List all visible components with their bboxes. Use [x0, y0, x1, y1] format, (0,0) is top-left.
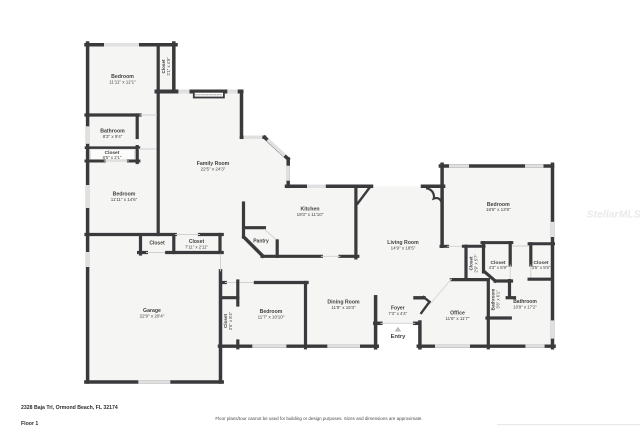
svg-text:11'8" x 15'3": 11'8" x 15'3" [331, 305, 356, 310]
svg-text:7'11" x 2'11": 7'11" x 2'11" [185, 244, 208, 249]
svg-text:11'7" x 10'10": 11'7" x 10'10" [258, 314, 285, 319]
svg-text:Floor 1: Floor 1 [21, 421, 38, 426]
svg-text:8'5" x 2'1": 8'5" x 2'1" [103, 155, 122, 160]
svg-text:Floor plans/tour cannot be use: Floor plans/tour cannot be used for buil… [215, 416, 422, 421]
svg-text:3'6" x 6'1": 3'6" x 6'1" [495, 290, 500, 309]
svg-text:11'11" x 12'1": 11'11" x 12'1" [109, 79, 136, 84]
svg-text:11'6" x 11'7": 11'6" x 11'7" [445, 316, 469, 321]
svg-text:7'3" x 4'4": 7'3" x 4'4" [388, 311, 407, 316]
svg-text:2328 Baja Trl, Ormond Beach, F: 2328 Baja Trl, Ormond Beach, FL 32174 [21, 405, 118, 411]
svg-text:11'11" x 14'6": 11'11" x 14'6" [111, 197, 138, 202]
svg-text:2'9" x 5'7": 2'9" x 5'7" [473, 254, 478, 273]
svg-text:14'9" x 18'5": 14'9" x 18'5" [391, 245, 416, 250]
svg-text:2'1" x 4'9": 2'1" x 4'9" [166, 57, 171, 76]
svg-text:22'9" x 20'4": 22'9" x 20'4" [140, 313, 165, 318]
svg-text:4'3" x 5'9": 4'3" x 5'9" [489, 265, 508, 270]
svg-text:3'5" x 5'5": 3'5" x 5'5" [532, 265, 551, 270]
svg-text:2'6" x 8'4": 2'6" x 8'4" [228, 311, 233, 330]
svg-text:19'3" x 11'10": 19'3" x 11'10" [297, 212, 324, 217]
svg-text:10'9" x 17'2": 10'9" x 17'2" [513, 304, 537, 309]
svg-text:Closet: Closet [149, 240, 165, 246]
svg-text:18'6" x 13'8": 18'6" x 13'8" [486, 207, 511, 212]
svg-text:22'5" x 24'3": 22'5" x 24'3" [201, 166, 226, 171]
svg-text:Pantry: Pantry [253, 238, 269, 244]
svg-text:8'3" x 9'4": 8'3" x 9'4" [103, 134, 123, 139]
svg-text:StellarMLS: StellarMLS [587, 209, 640, 221]
svg-text:Entry: Entry [391, 334, 407, 340]
